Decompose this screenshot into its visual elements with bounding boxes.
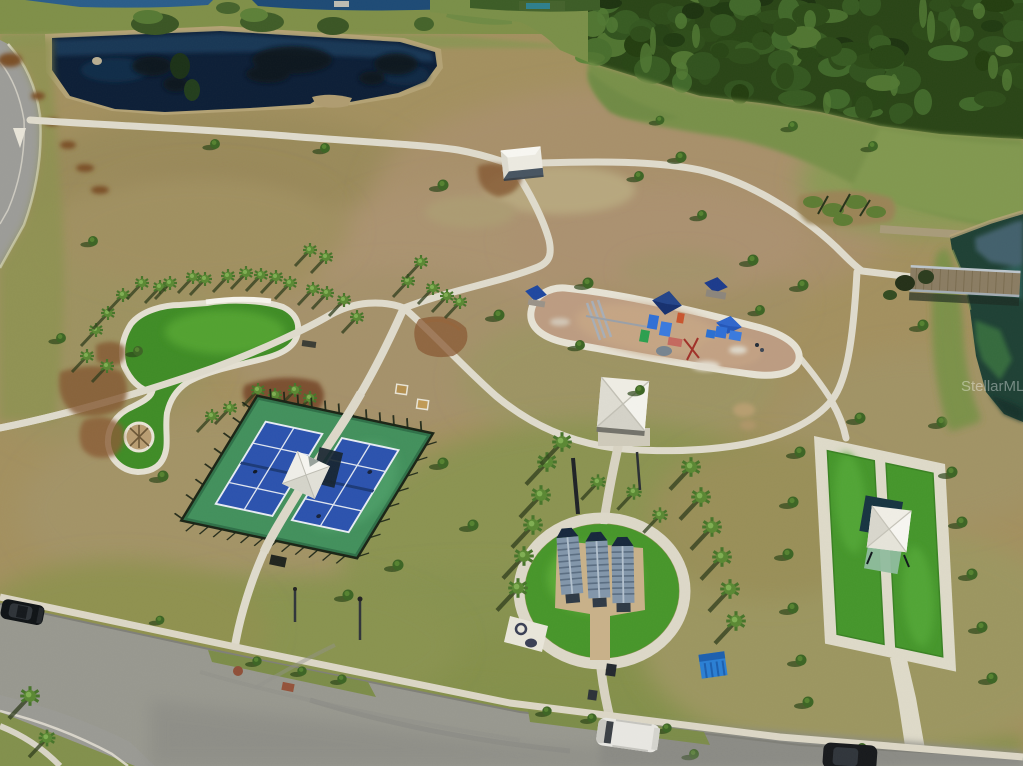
svg-text:StellarMLS: StellarMLS: [961, 378, 1023, 395]
